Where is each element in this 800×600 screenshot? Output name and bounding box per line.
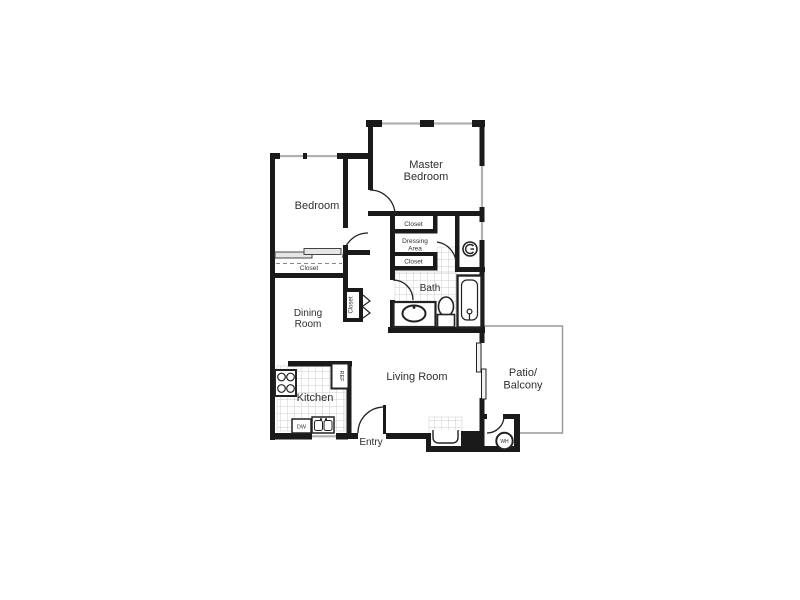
dressing-area-label-line2: Area [408,246,422,253]
bedroom-closet-label: Closet [300,265,319,272]
hall-closet-label: Closet [349,296,355,313]
master-bedroom-label-line2: Bedroom [404,171,449,183]
entry-door-leaf [383,405,386,434]
wall-dressing-closet-bottom-south [390,266,437,271]
window-nook-east [480,222,485,240]
washer-dryer-icon [463,242,477,256]
stove-icon [275,370,296,396]
wall-dressing-closet-top-east [433,215,438,234]
wall-master-south [368,211,483,216]
wall-living-south-2 [386,433,428,439]
wall-whcloset-east [514,414,520,452]
patio-label-line2: Balcony [503,380,543,392]
wall-dressing-closet-bottom-north [390,252,437,256]
wall-dressing-closet-bottom-east [433,252,438,271]
floor-plan-svg: Master Bedroom Bedroom Closet Closet Dre… [0,0,800,600]
window-kitchen-south [312,433,336,440]
entry-label: Entry [359,437,382,448]
dressing-area-label-line1: Dressing [402,238,428,245]
kitchen-sink-icon [312,417,334,433]
dining-room-label-line1: Dining [294,308,322,319]
window-bedroom-north-1 [280,153,303,159]
dressing-closet-top-label: Closet [404,221,423,228]
window-bedroom-north-2 [307,153,337,159]
bath-vanity-sink-icon [394,302,436,327]
wall-living-south-1 [346,433,358,439]
floor-plan: Master Bedroom Bedroom Closet Closet Dre… [0,0,800,600]
bath-label: Bath [420,283,441,294]
dishwasher-label: DW [297,425,307,431]
wall-hall-stub [343,250,370,255]
wall-closet-south [270,273,348,278]
wall-hall-closet-west [343,288,347,322]
wall-east-1 [480,120,485,166]
wall-nook-west [455,215,460,272]
entry-door-arc [358,407,384,433]
wh-closet-door-arc [487,416,504,433]
sliding-door-patio [477,343,487,399]
water-heater-label: WH [500,439,509,445]
dining-room-label-line2: Room [295,319,322,330]
wall-hall-closet-east [359,288,363,322]
wall-bedroom-east-upper [343,158,348,228]
wall-kitchen-south-1 [270,433,312,440]
bedroom-closet-slider-2 [304,249,341,255]
closet-details [275,249,370,319]
wall-east-4 [480,398,485,452]
dressing-closet-bottom-label: Closet [404,259,423,266]
master-bedroom-label-line1: Master [409,159,443,171]
toilet-icon [438,297,455,327]
refrigerator-label: REF [338,371,344,383]
window-master-north-2 [434,120,472,127]
wall-east-2 [480,207,485,222]
kitchen-label: Kitchen [297,392,334,404]
patio-label-line1: Patio/ [509,367,538,379]
bedroom-label: Bedroom [295,200,340,212]
fireplace-block [461,431,480,450]
living-room-label: Living Room [386,371,447,383]
wall-dressing-closet-top-south [390,229,437,234]
wall-whcloset-north-2 [503,414,514,419]
window-master-east [480,166,485,207]
wall-whcloset-north-1 [481,414,487,419]
hall-closet-bifold-door [363,295,370,318]
bathtub-icon [458,276,482,328]
window-master-north-1 [382,120,420,127]
hearth-niche-icon [433,430,458,443]
